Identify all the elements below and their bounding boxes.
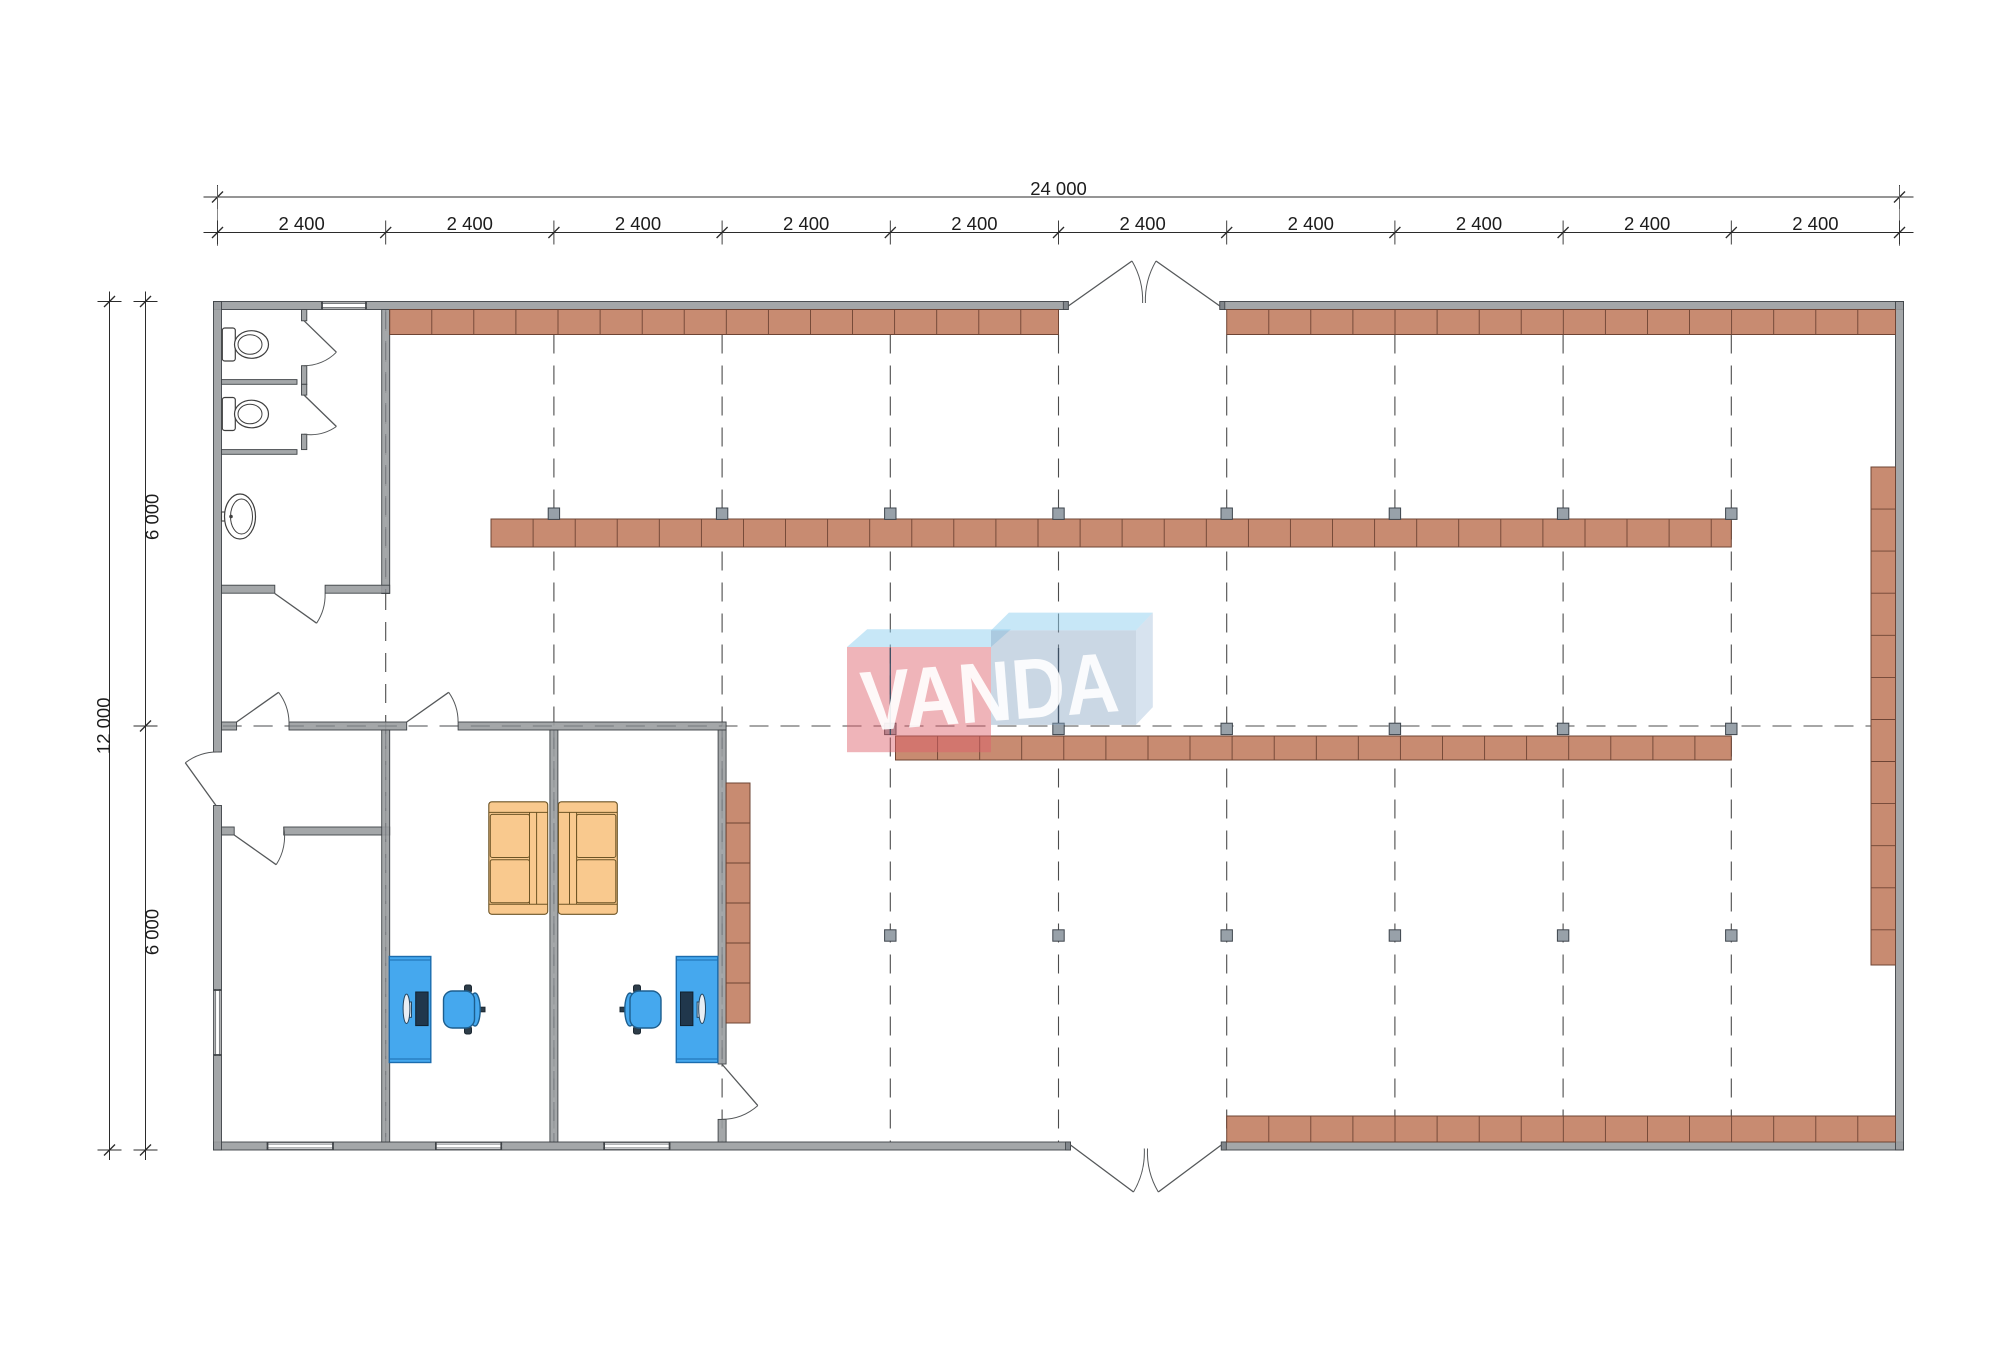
svg-text:2 400: 2 400	[1624, 213, 1670, 234]
svg-text:2 400: 2 400	[783, 213, 829, 234]
svg-text:2 400: 2 400	[1119, 213, 1165, 234]
svg-text:2 400: 2 400	[1456, 213, 1502, 234]
svg-text:2 400: 2 400	[1288, 213, 1334, 234]
svg-text:6 000: 6 000	[142, 909, 163, 955]
svg-text:2 400: 2 400	[951, 213, 997, 234]
svg-text:2 400: 2 400	[278, 213, 324, 234]
svg-text:VANDA: VANDA	[857, 635, 1122, 750]
svg-text:24 000: 24 000	[1030, 178, 1087, 199]
svg-text:2 400: 2 400	[615, 213, 661, 234]
svg-text:6 000: 6 000	[142, 494, 163, 540]
svg-text:12 000: 12 000	[93, 698, 114, 755]
svg-text:2 400: 2 400	[1792, 213, 1838, 234]
svg-text:2 400: 2 400	[447, 213, 493, 234]
